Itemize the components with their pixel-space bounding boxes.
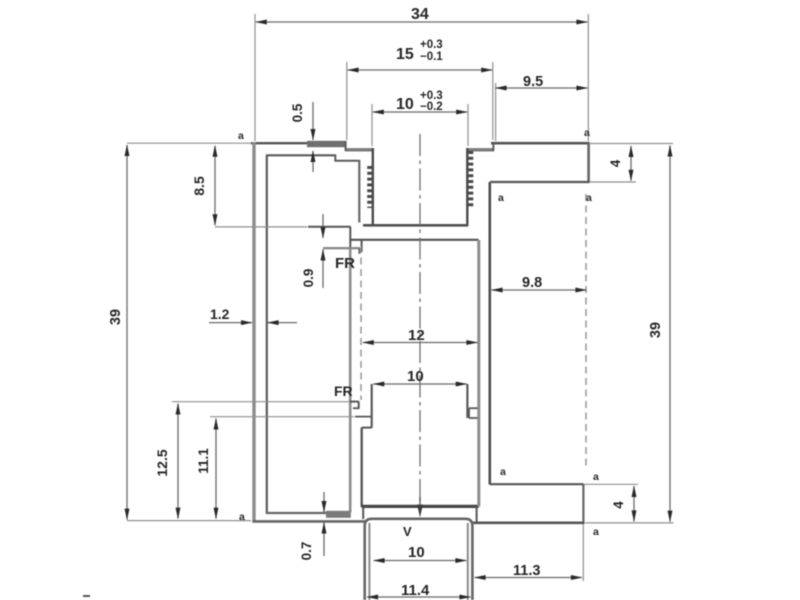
svg-text:4: 4 [611, 501, 626, 509]
svg-text:a: a [586, 192, 592, 204]
svg-text:a: a [239, 511, 245, 523]
svg-text:15: 15 [396, 46, 414, 63]
svg-text:39: 39 [648, 322, 664, 338]
svg-text:10: 10 [396, 96, 414, 113]
svg-text:0.5: 0.5 [290, 103, 305, 122]
svg-text:−0.1: −0.1 [420, 51, 443, 63]
svg-text:39: 39 [108, 309, 124, 325]
svg-text:12: 12 [408, 327, 425, 344]
svg-text:a: a [584, 127, 590, 139]
svg-text:V: V [403, 524, 412, 539]
svg-text:−0.2: −0.2 [420, 101, 443, 113]
svg-text:10: 10 [407, 368, 424, 385]
svg-text:11.3: 11.3 [513, 563, 540, 579]
svg-text:4: 4 [608, 159, 623, 167]
svg-text:9.5: 9.5 [523, 74, 543, 90]
svg-text:9.8: 9.8 [522, 275, 542, 291]
svg-text:1.2: 1.2 [210, 306, 230, 322]
svg-text:FR: FR [334, 383, 353, 399]
svg-text:+0.3: +0.3 [420, 39, 443, 51]
svg-text:11.4: 11.4 [401, 582, 430, 599]
svg-text:0.7: 0.7 [299, 542, 314, 561]
svg-text:a: a [238, 130, 244, 142]
svg-text:a: a [593, 471, 599, 483]
svg-text:a: a [500, 466, 506, 478]
svg-text:a: a [498, 192, 504, 204]
svg-text:11.1: 11.1 [196, 448, 211, 474]
svg-text:8.5: 8.5 [191, 176, 207, 196]
svg-text:0.9: 0.9 [301, 269, 316, 288]
svg-text:a: a [593, 526, 599, 538]
svg-text:10: 10 [408, 544, 425, 561]
svg-text:12.5: 12.5 [154, 449, 170, 476]
svg-text:34: 34 [411, 6, 429, 23]
svg-text:FR: FR [335, 255, 355, 272]
